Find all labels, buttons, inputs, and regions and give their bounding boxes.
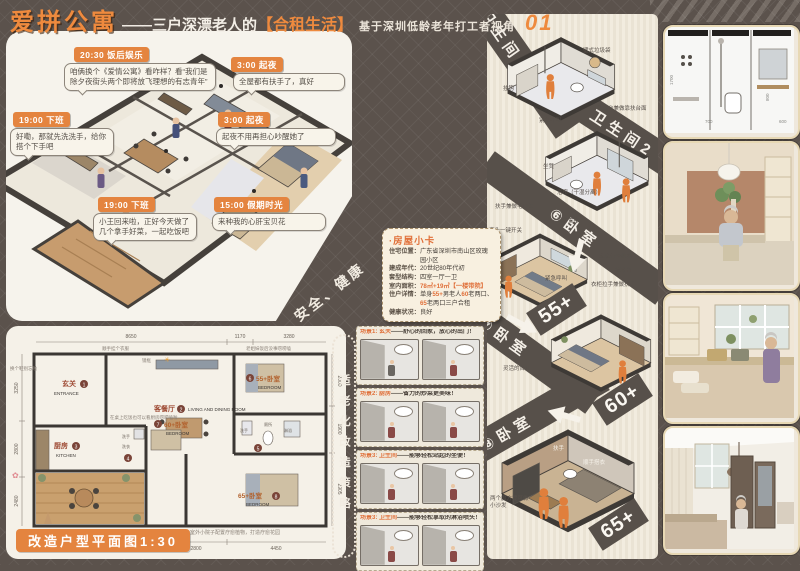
annotation: 扶手兼做毛巾架 <box>495 204 534 211</box>
annotation: 顺手搭衣 <box>583 460 605 467</box>
svg-text:3280: 3280 <box>283 334 294 340</box>
svg-text:2: 2 <box>180 408 183 414</box>
speech-bubble-washhands: 好嘞，那就先洗洗手，给你搭个下手吧 <box>10 128 114 156</box>
annotation: 窗台置物 <box>557 218 579 225</box>
isometric-apartment-card: 20:30 饭后娱乐 咱俩换个《爱情公寓》看咋样？看“我们是除夕夜街头两个即将放… <box>6 31 352 321</box>
title-subtitle: 基于深圳低龄老年打工者视角 <box>359 18 515 34</box>
svg-text:换个鞋别忘啦: 换个鞋别忘啦 <box>10 365 37 372</box>
svg-text:65+卧室: 65+卧室 <box>238 491 263 500</box>
annotation: 紧急呼叫 <box>539 118 561 125</box>
svg-text:客餐厅: 客餐厅 <box>153 404 175 413</box>
svg-text:BEDROOM: BEDROOM <box>246 502 270 507</box>
page-number: 01 <box>525 10 553 36</box>
svg-text:BEDROOM: BEDROOM <box>258 385 282 390</box>
svg-text:BEDROOM: BEDROOM <box>166 431 190 436</box>
annotation: 灵活的台灯 <box>503 366 531 373</box>
room-detail-column: 卫生间1 卫生间2 ⑥卧室 ⑦卧室 ⑧卧室 55+ 60+ 65+ 挂钩 壁式垃… <box>487 14 658 559</box>
svg-text:8: 8 <box>275 495 278 501</box>
svg-text:洗衣: 洗衣 <box>122 443 130 449</box>
title-dash: ——三户深漂老人的 <box>122 14 257 35</box>
scene-card-bathroom-shower: 场景3: 卫生间——能够轻松拿取的淋浴喷头！ <box>356 512 484 571</box>
sun-icon: ☀ <box>164 356 170 364</box>
house-health: 良好 <box>420 309 494 318</box>
floor-plan-card: 8650 1170 3280 3250 2800 2480 2000 1900 … <box>6 326 346 559</box>
speech-bubble-handrail: 全屋都有扶手了，真好 <box>233 73 345 91</box>
comic-panel <box>422 401 481 442</box>
svg-text:洗手: 洗手 <box>240 427 248 433</box>
svg-text:55+卧室: 55+卧室 <box>256 374 281 383</box>
svg-text:60+卧室: 60+卧室 <box>164 420 189 429</box>
annotation: 挂钩 <box>503 86 514 93</box>
time-label-1500: 15:00 假期时光 <box>214 197 289 212</box>
svg-text:顺手挂个衣服: 顺手挂个衣服 <box>102 345 129 352</box>
speech-bubble-tv: 咱俩换个《爱情公寓》看咋样？看“我们是除夕夜街头两个即将放飞理想的有志青年” <box>64 63 216 91</box>
resident-figure <box>98 168 105 189</box>
svg-text:600: 600 <box>779 119 787 124</box>
house-year: 20世纪80年代初 <box>420 265 494 274</box>
title-main: 爱拼公寓 <box>10 2 118 37</box>
house-occupants: 单身55+男老人60老两口、65老两口三户合租 <box>420 291 494 308</box>
comic-panel <box>360 339 419 380</box>
comic-panel <box>360 463 419 504</box>
flower-icon: ✿ <box>12 471 19 480</box>
svg-text:厨房: 厨房 <box>54 441 68 450</box>
annotation: 洗漱台兼做靠扶台面 <box>597 106 647 113</box>
annotation: 紧急呼叫 <box>545 276 567 283</box>
svg-text:1170: 1170 <box>235 334 246 340</box>
bathroom2-isometric <box>537 124 657 226</box>
svg-text:室外小院子配置疗愈植物，打造疗愈花园: 室外小院子配置疗愈植物，打造疗愈花园 <box>190 529 280 536</box>
svg-text:1: 1 <box>83 383 86 389</box>
svg-text:厕所: 厕所 <box>264 421 272 427</box>
annotation: 扶手 <box>553 446 564 453</box>
house-location: 广东省深圳市南山区玫瑰园小区 <box>420 248 494 265</box>
plan-caption: 改造户型平面图1:30 <box>16 529 190 552</box>
svg-text:3250: 3250 <box>14 382 20 393</box>
comic-panel <box>360 525 419 566</box>
scene-card-entrance: 场景1: 玄关——舒心的回家，放心的出门！ <box>356 326 484 385</box>
svg-text:4: 4 <box>127 457 130 463</box>
svg-text:洗手: 洗手 <box>122 433 130 439</box>
time-label-300b: 3:00 起夜 <box>218 112 270 127</box>
house-card-title: ·房屋小卡 <box>389 233 494 247</box>
time-label-1900b: 19:00 下班 <box>98 197 155 212</box>
time-label-2030: 20:30 饭后娱乐 <box>74 47 149 62</box>
svg-text:2800: 2800 <box>14 443 20 454</box>
svg-text:800: 800 <box>765 93 770 101</box>
scene-card-bathroom-toilet: 场景3: 卫生间——能够轻松站起的坐便！ <box>356 450 484 509</box>
resident-figure <box>173 118 180 139</box>
house-info-card: ·房屋小卡 住宅位置：广东省深圳市南山区玫瑰园小区 建成年代：20世纪80年代初… <box>382 228 501 322</box>
svg-text:LIVING AND DINING ROOM: LIVING AND DINING ROOM <box>188 407 246 412</box>
svg-text:玄关: 玄关 <box>62 379 76 388</box>
speech-bubble-nightup: 起夜不用再担心吵醒她了 <box>216 128 336 146</box>
comic-panel <box>422 525 481 566</box>
comic-panel <box>360 401 419 442</box>
resident-figure <box>301 168 308 189</box>
svg-text:8650: 8650 <box>125 334 136 340</box>
svg-text:KITCHEN: KITCHEN <box>56 453 76 458</box>
comic-panel <box>422 463 481 504</box>
svg-text:700: 700 <box>705 119 713 124</box>
house-type: 四室一厅一卫 <box>420 274 494 283</box>
poster-title: 爱拼公寓 ——三户深漂老人的 【合租生活】 基于深圳低龄老年打工者视角 01 <box>10 2 554 37</box>
svg-text:3: 3 <box>75 445 78 451</box>
svg-text:淋浴: 淋浴 <box>284 427 292 433</box>
svg-text:7: 7 <box>157 423 160 429</box>
svg-text:2800: 2800 <box>190 546 201 552</box>
scene-card-kitchen: 场景2: 厨房——省力的炒菜更美味！ <box>356 388 484 447</box>
corner-stripe-decor <box>650 0 800 22</box>
floor-plan-drawing: 8650 1170 3280 3250 2800 2480 2000 1900 … <box>6 326 346 559</box>
annotation: 梳妆台 <box>615 268 632 275</box>
speech-bubble-dinner: 小王回来啦，正好今天做了几个拿手好菜，一起吃饭吧 <box>93 213 197 241</box>
time-label-300a: 3:00 起夜 <box>231 57 283 72</box>
annotation: 坐凳 <box>543 164 554 171</box>
photo-bedroom-man <box>663 141 800 291</box>
svg-text:5: 5 <box>257 447 260 453</box>
svg-text:4450: 4450 <box>270 546 281 552</box>
photo-bathroom-elevation: 1700 700 800 600 <box>663 25 800 139</box>
svg-text:2480: 2480 <box>14 495 20 506</box>
annotation: 浴帘（干湿分离） <box>557 190 601 197</box>
annotation: 两个魔方凳可做小沙发 <box>490 496 532 510</box>
annotation: 衣柜拉手兼做扶手 <box>591 282 635 289</box>
annotation: 壁式垃圾袋 <box>583 48 611 55</box>
scene-cards-column: 场景1: 玄关——舒心的回家，放心的出门！ 场景2: 厨房——省力的炒菜更美味！… <box>356 326 484 571</box>
svg-text:1700: 1700 <box>669 74 674 85</box>
speech-bubble-flowers: 来种我的心肝宝贝花 <box>212 213 326 231</box>
svg-text:镜框: 镜框 <box>142 357 151 364</box>
svg-text:ENTRANCE: ENTRANCE <box>54 391 79 396</box>
svg-text:老姐妹饭后没事唠唠嗑: 老姐妹饭后没事唠唠嗑 <box>246 345 291 352</box>
time-label-1900a: 19:00 下班 <box>13 112 70 127</box>
annotation: 床底行李收纳 <box>599 254 632 261</box>
svg-text:在桌上吃饭也可以看厨房唠唠嗑啦: 在桌上吃饭也可以看厨房唠唠嗑啦 <box>110 414 178 421</box>
svg-text:6: 6 <box>249 377 252 383</box>
comic-panel <box>422 339 481 380</box>
strategy-banner: 适老化改造策略 <box>332 334 356 558</box>
photo-bedroom-window-seat <box>663 293 800 424</box>
title-highlight: 【合租生活】 <box>257 11 353 35</box>
photo-bedroom-wardrobe <box>663 426 800 555</box>
